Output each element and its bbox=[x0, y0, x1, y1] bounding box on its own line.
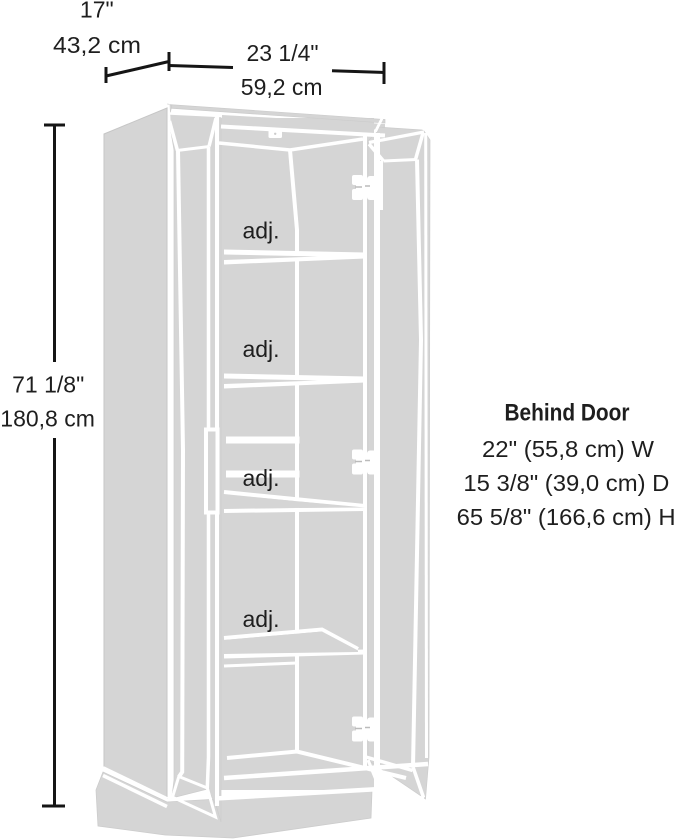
svg-text:Behind Door: Behind Door bbox=[505, 400, 630, 427]
svg-text:15 3/8" (39,0 cm) D: 15 3/8" (39,0 cm) D bbox=[463, 470, 669, 496]
svg-text:23 1/4": 23 1/4" bbox=[246, 40, 318, 66]
svg-text:adj.: adj. bbox=[242, 217, 279, 243]
svg-text:17": 17" bbox=[80, 0, 114, 23]
svg-text:180,8 cm: 180,8 cm bbox=[0, 405, 95, 431]
svg-text:adj.: adj. bbox=[242, 336, 279, 362]
svg-text:22" (55,8 cm) W: 22" (55,8 cm) W bbox=[482, 436, 654, 462]
svg-text:adj.: adj. bbox=[242, 465, 279, 491]
svg-text:71 1/8": 71 1/8" bbox=[12, 371, 84, 397]
svg-text:adj.: adj. bbox=[242, 606, 279, 632]
svg-text:65 5/8" (166,6 cm) H: 65 5/8" (166,6 cm) H bbox=[457, 504, 676, 530]
svg-text:43,2 cm: 43,2 cm bbox=[53, 32, 141, 58]
svg-text:59,2 cm: 59,2 cm bbox=[241, 74, 323, 100]
